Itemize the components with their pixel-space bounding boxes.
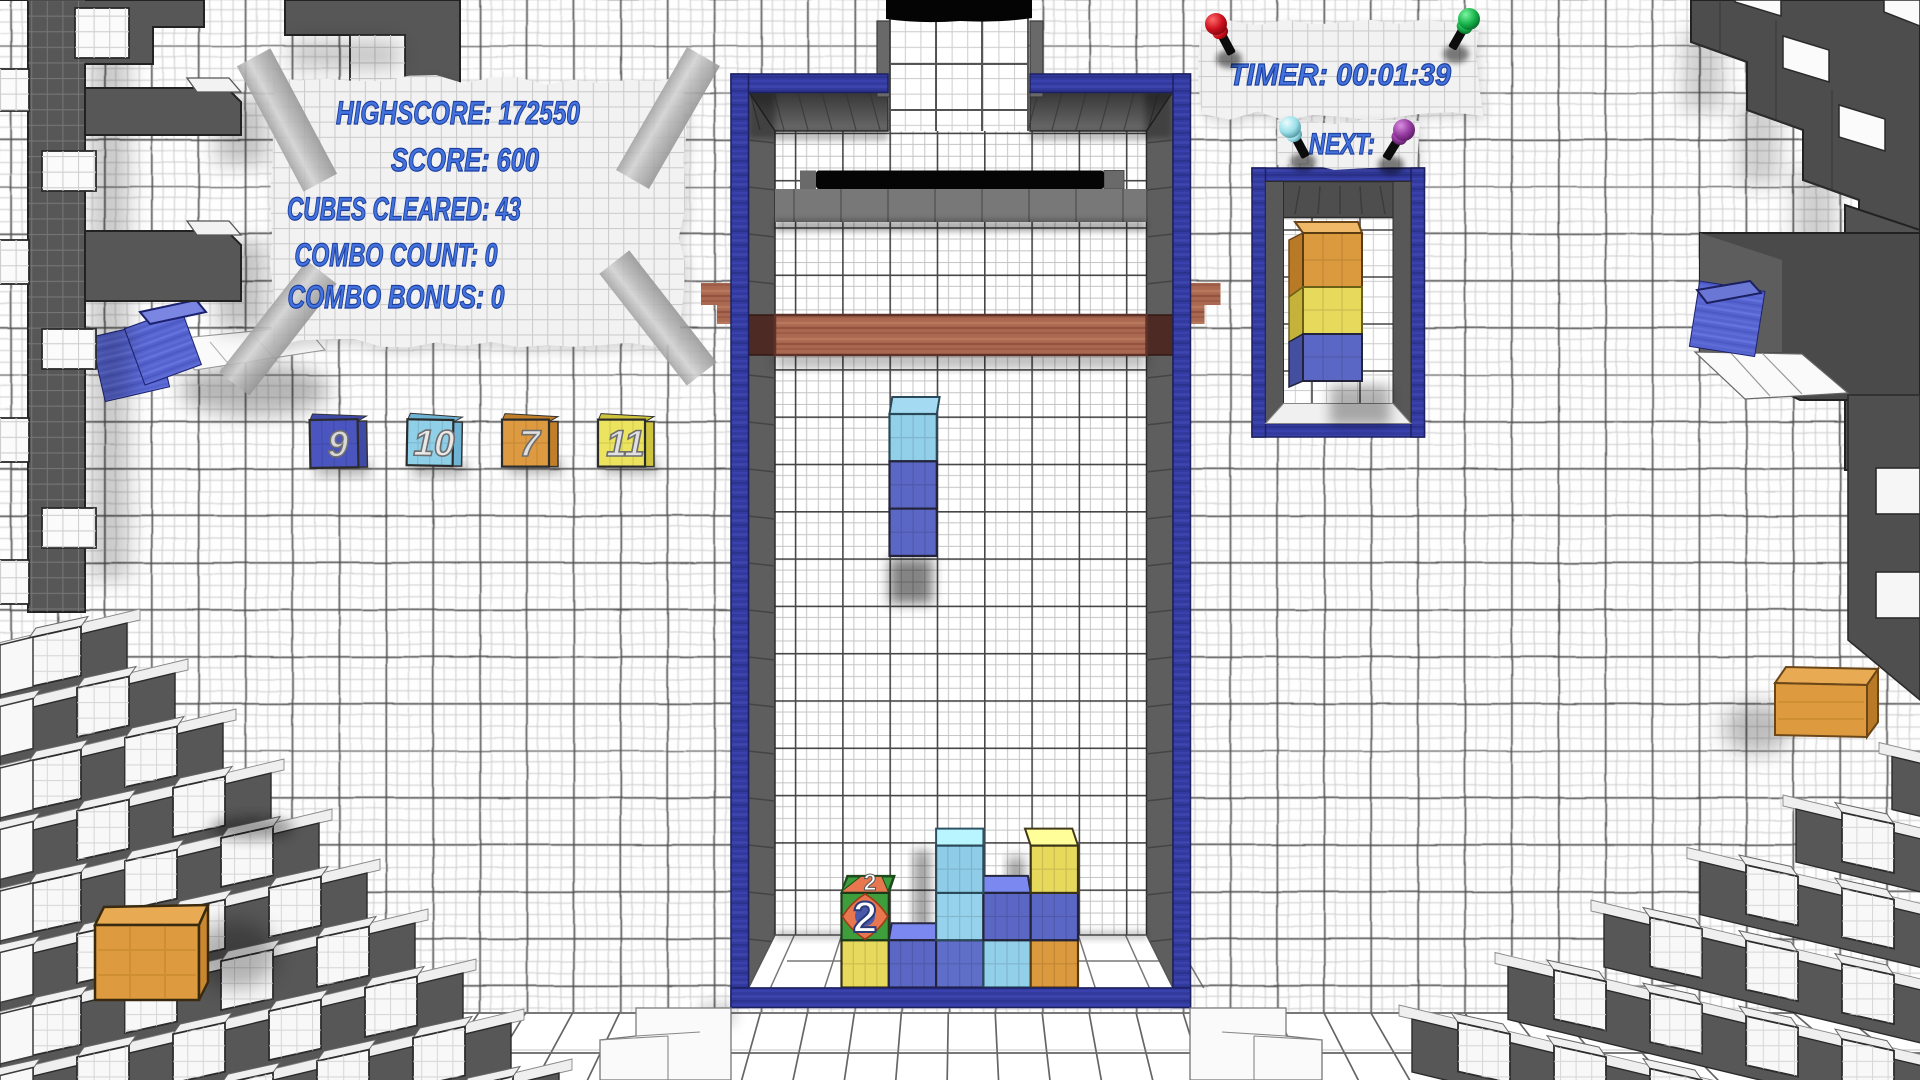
- svg-text:NEXT:: NEXT:: [1309, 128, 1375, 161]
- svg-text:CUBES CLEARED: 43: CUBES CLEARED: 43: [287, 191, 521, 227]
- svg-text:SCORE: 600: SCORE: 600: [391, 142, 539, 178]
- svg-text:7: 7: [519, 423, 542, 464]
- svg-text:TIMER: 00:01:39: TIMER: 00:01:39: [1229, 57, 1452, 92]
- svg-text:2: 2: [853, 893, 877, 942]
- svg-text:HIGHSCORE: 172550: HIGHSCORE: 172550: [336, 95, 580, 131]
- svg-text:11: 11: [606, 423, 644, 464]
- svg-text:COMBO BONUS: 0: COMBO BONUS: 0: [288, 279, 505, 315]
- svg-text:2: 2: [864, 869, 877, 895]
- svg-text:9: 9: [327, 423, 349, 464]
- svg-text:10: 10: [413, 422, 455, 464]
- svg-text:COMBO COUNT: 0: COMBO COUNT: 0: [295, 237, 498, 273]
